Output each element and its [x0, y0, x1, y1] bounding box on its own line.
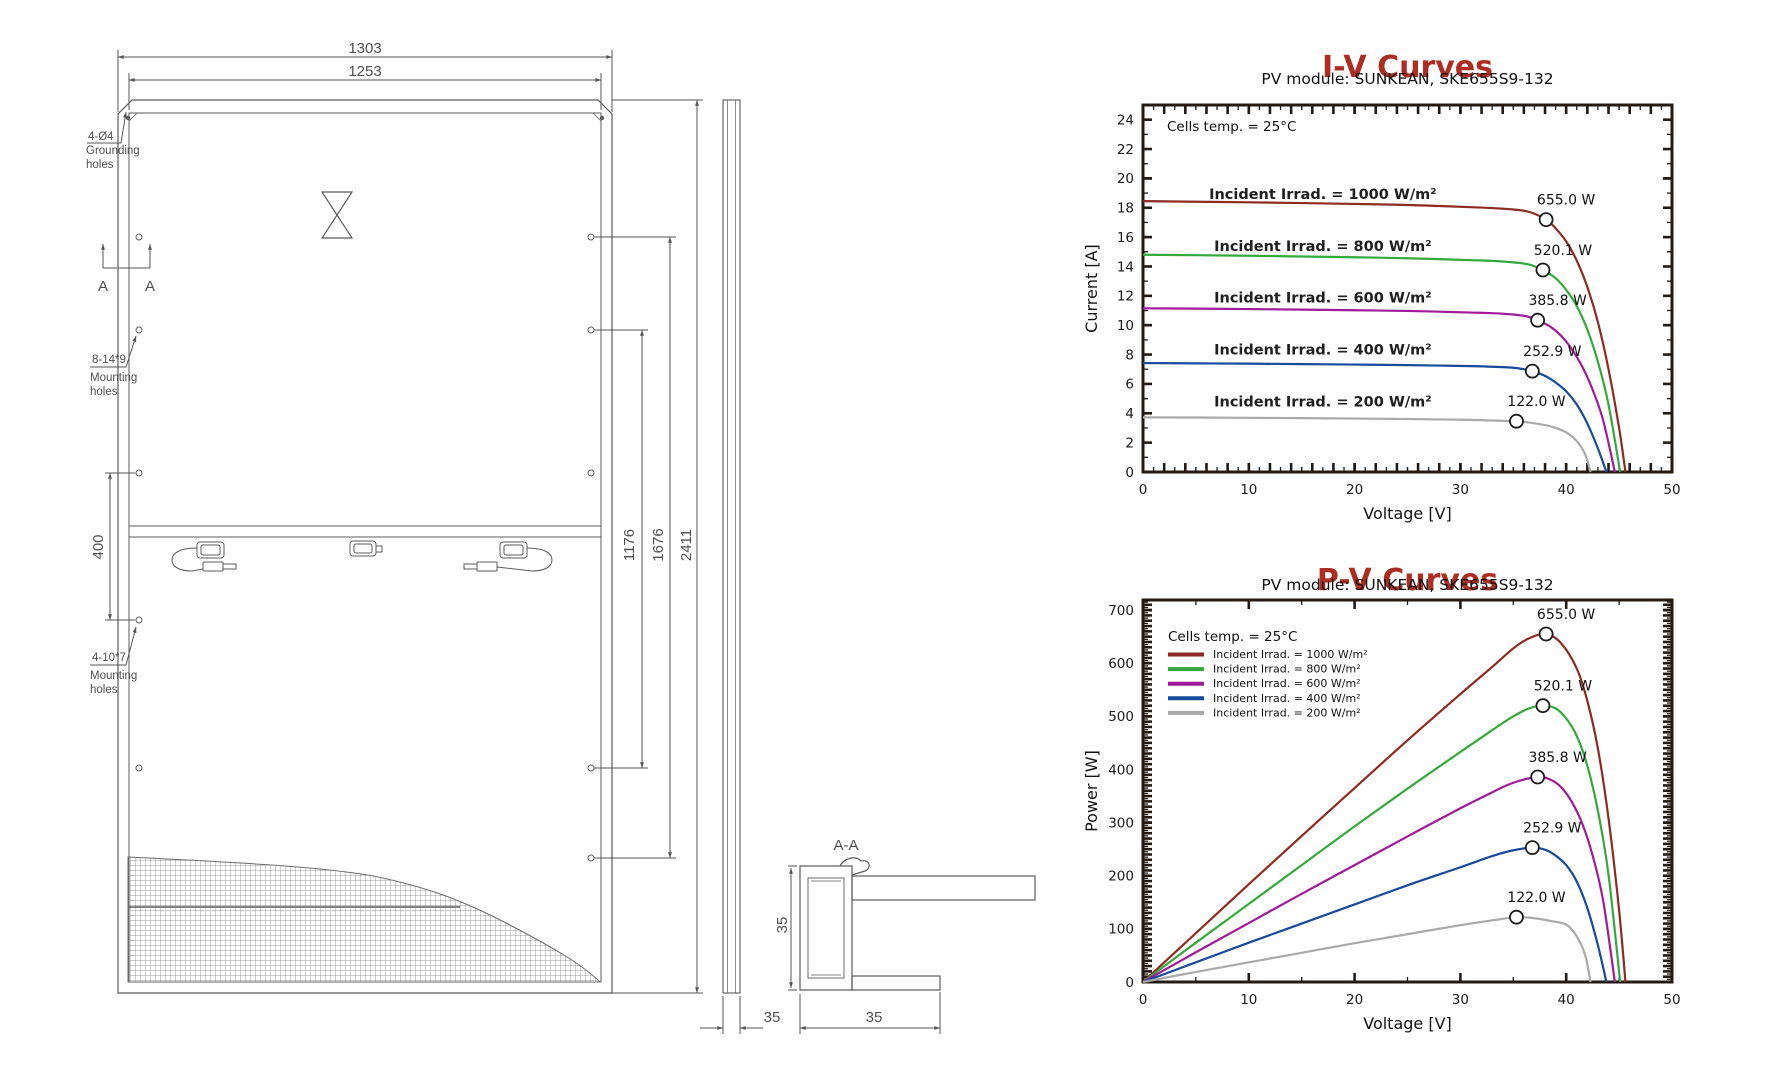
iv-plot: 01020304050024681012141618202224Voltage … — [1060, 0, 1780, 530]
pv-plot: 010203040500100200300400500600700Voltage… — [1060, 530, 1780, 1073]
svg-text:30: 30 — [1452, 992, 1469, 1008]
pv-legend-label-irr-1000: Incident Irrad. = 1000 W/m² — [1213, 648, 1368, 661]
svg-text:0: 0 — [1139, 482, 1148, 498]
svg-text:0: 0 — [1139, 992, 1148, 1008]
mounting8-callout-3: holes — [90, 386, 118, 398]
svg-text:400: 400 — [1108, 762, 1134, 778]
svg-text:200: 200 — [1108, 869, 1134, 885]
svg-text:18: 18 — [1117, 201, 1134, 217]
callout-texts: 4-Ø4 Grounding holes 8-14*9 Mounting hol… — [86, 131, 140, 696]
pv-chart-section: P-V Curves PV module: SUNKEAN, SKE655S9-… — [1060, 530, 1780, 1073]
iv-mpp-marker-irr-400 — [1526, 365, 1539, 378]
pv-mpp-marker-irr-800 — [1536, 699, 1549, 712]
svg-text:16: 16 — [1117, 230, 1134, 246]
side-view-dims — [700, 996, 763, 1034]
grounding-callout-1: 4-Ø4 — [88, 131, 114, 143]
mounting4-callout-2: Mounting — [90, 670, 137, 682]
mounting8-callout-2: Mounting — [90, 372, 137, 384]
svg-text:22: 22 — [1117, 142, 1134, 158]
svg-text:700: 700 — [1108, 603, 1134, 619]
iv-mpp-label-irr-400: 252.9 W — [1523, 344, 1582, 360]
svg-text:8: 8 — [1125, 347, 1134, 363]
iv-mpp-marker-irr-200 — [1510, 415, 1523, 428]
svg-text:24: 24 — [1117, 112, 1134, 128]
svg-text:30: 30 — [1452, 482, 1469, 498]
pv-curve-irr-400 — [1143, 848, 1606, 982]
technical-drawing: 1303 1253 400 1176 1676 2411 35 35 35 A … — [0, 0, 1060, 1073]
section-title: A-A — [833, 837, 858, 854]
grounding-callout-2: Grounding — [86, 145, 140, 157]
pv-xlabel: Voltage [V] — [1363, 1014, 1452, 1033]
svg-text:40: 40 — [1558, 992, 1575, 1008]
svg-text:50: 50 — [1663, 482, 1680, 498]
svg-text:12: 12 — [1117, 289, 1134, 305]
dim-width-inner: 1253 — [348, 63, 381, 80]
svg-text:300: 300 — [1108, 815, 1134, 831]
pv-mpp-marker-irr-600 — [1531, 771, 1544, 784]
pv-mpp-label-irr-400: 252.9 W — [1523, 821, 1582, 837]
svg-text:20: 20 — [1117, 171, 1134, 187]
mounting4-callout-3: holes — [90, 684, 118, 696]
dim-v-span2: 1676 — [650, 528, 667, 561]
pv-legend-label-irr-800: Incident Irrad. = 800 W/m² — [1213, 663, 1361, 676]
svg-text:40: 40 — [1558, 482, 1575, 498]
iv-curve-label-irr-800: Incident Irrad. = 800 W/m² — [1214, 239, 1431, 255]
pv-legend-label-irr-400: Incident Irrad. = 400 W/m² — [1213, 692, 1361, 705]
dim-v-span1: 1176 — [621, 529, 638, 561]
svg-text:50: 50 — [1663, 992, 1680, 1008]
dim-height: 2411 — [678, 529, 695, 561]
iv-curve-irr-600 — [1143, 308, 1615, 472]
iv-ylabel: Current [A] — [1082, 244, 1101, 333]
side-view — [723, 100, 740, 993]
svg-text:10: 10 — [1240, 482, 1257, 498]
pv-mpp-marker-irr-400 — [1526, 841, 1539, 854]
mounting-holes — [136, 234, 594, 861]
iv-mpp-label-irr-200: 122.0 W — [1507, 394, 1566, 410]
svg-text:600: 600 — [1108, 656, 1134, 672]
dim-width-outer: 1303 — [348, 40, 381, 57]
pv-mpp-label-irr-200: 122.0 W — [1507, 890, 1566, 906]
svg-text:500: 500 — [1108, 709, 1134, 725]
pv-curve-irr-200 — [1143, 917, 1591, 982]
iv-mpp-label-irr-800: 520.1 W — [1534, 243, 1593, 259]
svg-text:14: 14 — [1117, 259, 1134, 275]
iv-cells-temp-annotation: Cells temp. = 25°C — [1167, 119, 1296, 135]
grounding-holes — [126, 116, 604, 120]
dim-section-height: 35 — [774, 917, 791, 934]
dim-section-width: 35 — [866, 1009, 883, 1026]
section-marker-a2: A — [145, 278, 155, 295]
pv-legend-label-irr-600: Incident Irrad. = 600 W/m² — [1213, 677, 1361, 690]
iv-curve-label-irr-400: Incident Irrad. = 400 W/m² — [1214, 343, 1431, 359]
iv-mpp-marker-irr-600 — [1531, 314, 1544, 327]
hatch-region — [128, 857, 600, 982]
svg-text:4: 4 — [1125, 406, 1134, 422]
svg-text:20: 20 — [1346, 992, 1363, 1008]
svg-text:6: 6 — [1125, 377, 1134, 393]
iv-curve-label-irr-1000: Incident Irrad. = 1000 W/m² — [1209, 187, 1437, 203]
pv-mpp-marker-irr-200 — [1510, 911, 1523, 924]
bowtie-symbol — [322, 192, 352, 238]
front-view — [118, 100, 612, 993]
svg-text:10: 10 — [1117, 318, 1134, 334]
svg-text:0: 0 — [1125, 975, 1134, 991]
grounding-callout-3: holes — [86, 159, 114, 171]
section-marker-a1: A — [98, 278, 108, 295]
pv-mpp-label-irr-600: 385.8 W — [1528, 750, 1587, 766]
svg-text:100: 100 — [1108, 922, 1134, 938]
iv-curve-label-irr-200: Incident Irrad. = 200 W/m² — [1214, 395, 1431, 411]
pv-curve-irr-800 — [1143, 706, 1620, 982]
iv-xlabel: Voltage [V] — [1363, 504, 1452, 523]
dim-hole-span: 400 — [90, 534, 107, 559]
mounting4-callout-1: 4-10*7 — [92, 652, 126, 664]
pv-legend: Incident Irrad. = 1000 W/m²Incident Irra… — [1168, 648, 1368, 719]
junction-boxes — [172, 541, 552, 571]
pv-ylabel: Power [W] — [1082, 750, 1101, 832]
iv-mpp-marker-irr-800 — [1536, 264, 1549, 277]
mounting8-callout-1: 8-14*9 — [92, 354, 126, 366]
pv-mpp-marker-irr-1000 — [1540, 628, 1553, 641]
svg-text:0: 0 — [1125, 465, 1134, 481]
section-view — [800, 858, 1035, 990]
iv-mpp-label-irr-600: 385.8 W — [1528, 293, 1587, 309]
iv-curve-label-irr-600: Incident Irrad. = 600 W/m² — [1214, 290, 1431, 306]
pv-cells-temp-annotation: Cells temp. = 25°C — [1168, 629, 1297, 645]
page: 1303 1253 400 1176 1676 2411 35 35 35 A … — [0, 0, 1780, 1073]
svg-text:20: 20 — [1346, 482, 1363, 498]
iv-mpp-label-irr-1000: 655.0 W — [1537, 193, 1596, 209]
section-dims — [788, 866, 940, 1034]
dimension-lines — [87, 50, 703, 993]
pv-legend-label-irr-200: Incident Irrad. = 200 W/m² — [1213, 706, 1361, 719]
svg-text:2: 2 — [1125, 435, 1134, 451]
pv-mpp-label-irr-800: 520.1 W — [1534, 679, 1593, 695]
iv-mpp-marker-irr-1000 — [1540, 213, 1553, 226]
pv-mpp-label-irr-1000: 655.0 W — [1537, 607, 1596, 623]
pv-tick-labels: 010203040500100200300400500600700 — [1108, 603, 1680, 1008]
iv-chart-section: I-V Curves PV module: SUNKEAN, SKE655S9-… — [1060, 0, 1780, 530]
svg-text:10: 10 — [1240, 992, 1257, 1008]
dim-side-thickness: 35 — [764, 1009, 781, 1026]
